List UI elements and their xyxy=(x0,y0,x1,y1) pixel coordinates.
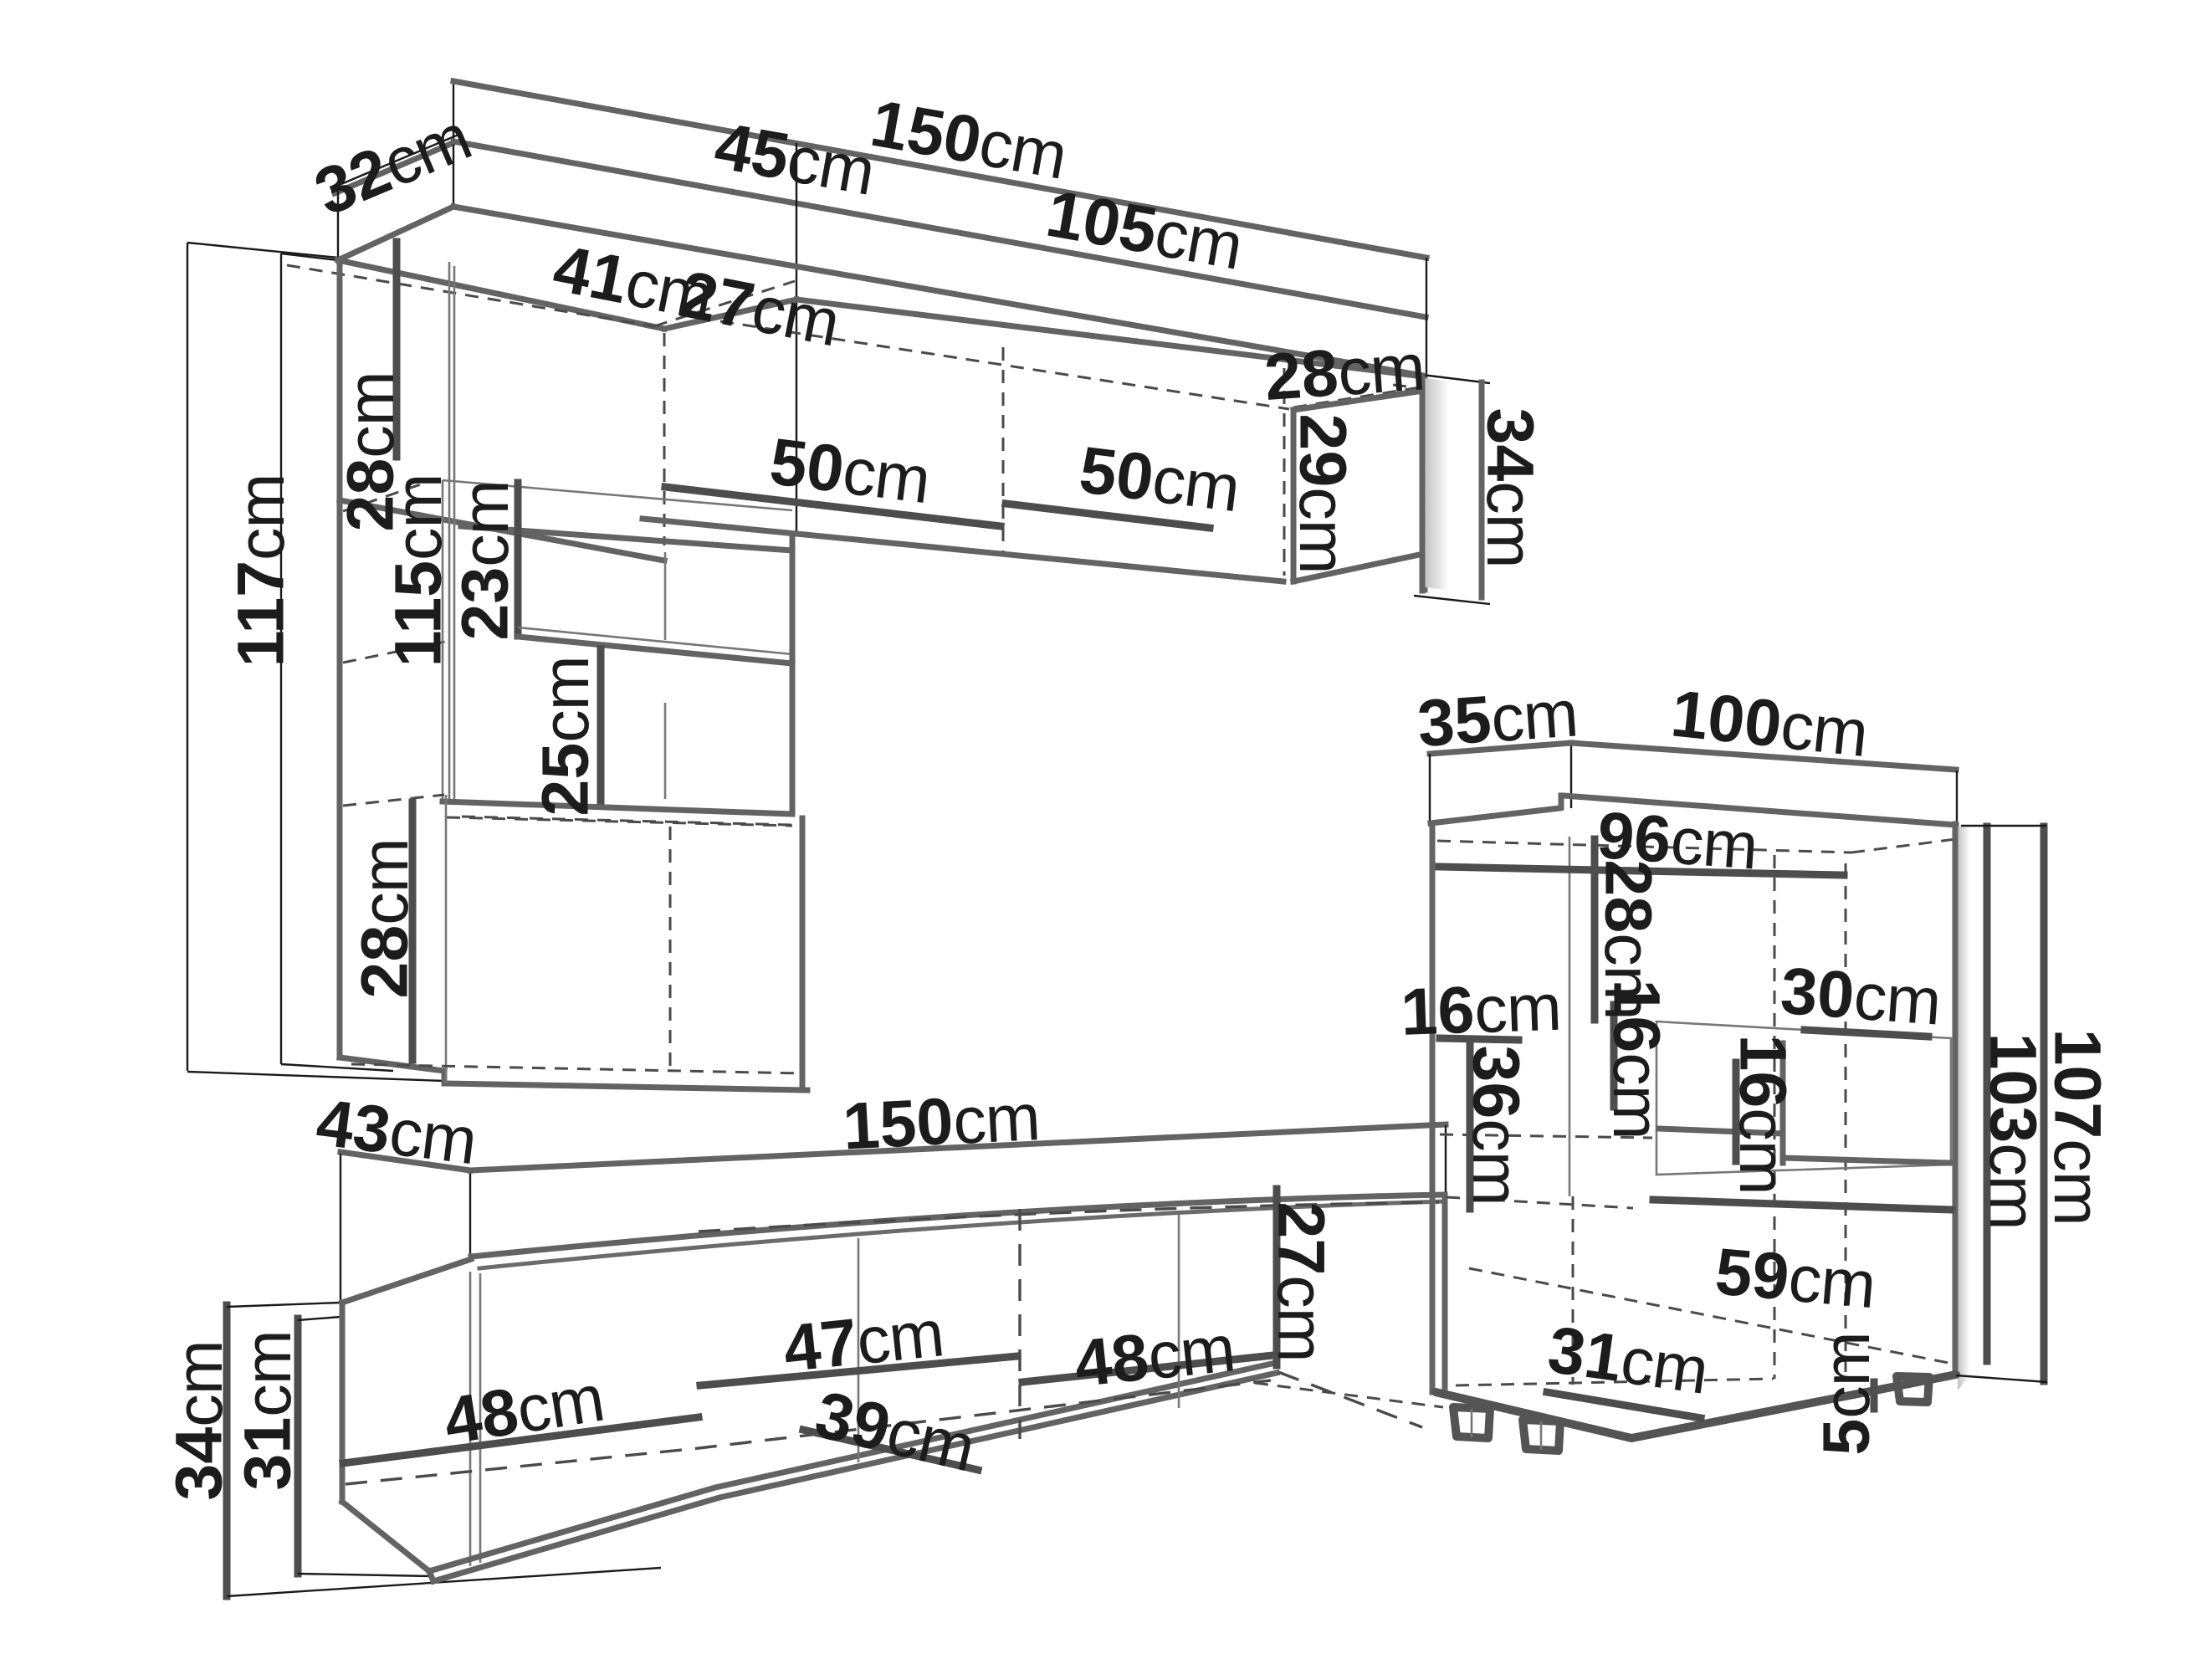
svg-text:16cm: 16cm xyxy=(1400,969,1562,1049)
svg-text:25cm: 25cm xyxy=(528,656,602,816)
svg-text:34cm: 34cm xyxy=(1474,407,1549,567)
svg-text:29cm: 29cm xyxy=(1287,413,1361,573)
svg-text:35cm: 35cm xyxy=(1416,675,1580,760)
svg-text:59cm: 59cm xyxy=(1713,1233,1878,1321)
svg-text:5cm: 5cm xyxy=(1809,1332,1883,1455)
svg-text:27cm: 27cm xyxy=(1265,1201,1339,1361)
svg-text:23cm: 23cm xyxy=(448,480,522,640)
svg-text:30cm: 30cm xyxy=(1779,953,1943,1038)
svg-text:16cm: 16cm xyxy=(1727,1034,1801,1194)
svg-text:28cm: 28cm xyxy=(1262,329,1427,414)
svg-text:34cm: 34cm xyxy=(161,1340,236,1500)
svg-text:107cm: 107cm xyxy=(2041,1028,2116,1225)
svg-text:117cm: 117cm xyxy=(223,474,298,668)
svg-text:31cm: 31cm xyxy=(230,1330,305,1490)
svg-text:16cm: 16cm xyxy=(1600,979,1675,1139)
svg-text:28cm: 28cm xyxy=(347,838,422,998)
svg-text:150cm: 150cm xyxy=(841,1078,1041,1163)
svg-text:103cm: 103cm xyxy=(1977,1032,2051,1229)
svg-text:115cm: 115cm xyxy=(381,474,455,668)
svg-text:36cm: 36cm xyxy=(1460,1045,1534,1205)
